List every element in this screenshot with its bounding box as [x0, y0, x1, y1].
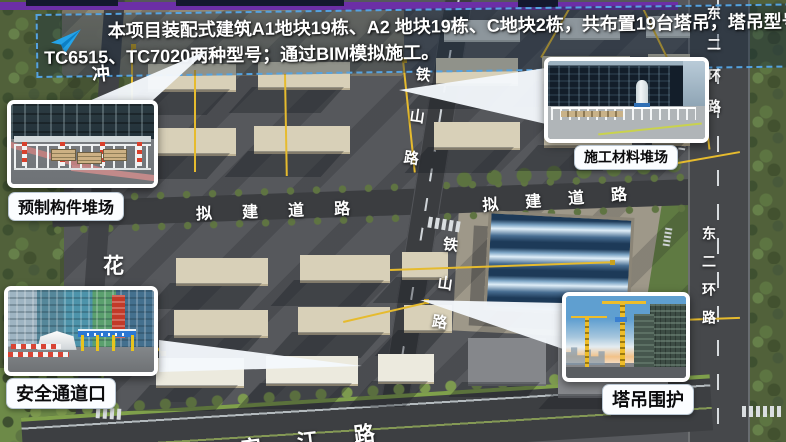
building-block [266, 356, 358, 386]
tower-facade [548, 66, 670, 107]
callout-label-safety-entrance: 安全通道口 [6, 378, 116, 409]
crane-marker [610, 260, 615, 265]
safety-entrance-photo [8, 290, 154, 372]
precast-stack [103, 149, 128, 161]
silo [636, 80, 649, 105]
canopy-leg [131, 335, 134, 351]
callout-image-safety-entrance [4, 286, 158, 376]
building-block [300, 255, 390, 283]
callout-image-crane-enclosure [562, 292, 690, 382]
slide-accent-segment [176, 0, 344, 6]
road-label-hua: 花 [103, 250, 124, 280]
callout-label-crane-enclosure: 塔吊围护 [602, 384, 694, 415]
sky [683, 61, 705, 106]
striped-post [137, 142, 142, 166]
banner-text-line1: 本项目装配式建筑A1地块19栋、A2 地块19栋、C地块2栋，共布置19台塔吊，… [108, 8, 786, 43]
precast-yard-photo [11, 104, 154, 184]
road-label-ring-south: 东二环路 [699, 226, 719, 338]
ground [566, 367, 686, 378]
slide-accent-segment [26, 0, 118, 6]
canopy-leg [96, 335, 99, 351]
road-label-chong: 冲 [91, 59, 112, 87]
building-block [174, 310, 268, 338]
material-stacks [561, 111, 624, 117]
canopy-leg [81, 335, 84, 351]
canopy-leg [112, 335, 115, 351]
glass-building [634, 314, 653, 368]
building-block [146, 128, 236, 156]
tower-crane-jib [602, 301, 646, 304]
precast-stack [77, 152, 102, 164]
tower-crane-jib [571, 316, 607, 318]
crane-enclosure-photo [566, 296, 686, 378]
safety-canopy-sign [78, 329, 136, 338]
glass-building [650, 304, 686, 368]
bim-site-plan: 拟建道路 拟建道路 铁山路 铁山路 东二环路 东二环路 安江路 冲 花 本项目装… [0, 0, 786, 442]
callout-label-material-yard: 施工材料堆场 [574, 145, 678, 170]
building-block [254, 126, 350, 154]
crosswalk [742, 406, 781, 417]
callout-image-precast-yard [7, 100, 158, 188]
precast-stack [51, 149, 76, 161]
crane-sign [615, 317, 627, 322]
callout-image-material-yard [544, 57, 709, 143]
crane-marker [424, 299, 429, 304]
building-block [468, 338, 546, 386]
building-block [378, 354, 434, 384]
tower-crane-mast [620, 301, 625, 367]
girder [14, 136, 151, 142]
building-block [434, 122, 520, 150]
crane-marker [161, 351, 166, 356]
tower-crane-line [194, 70, 196, 172]
striped-post [22, 142, 27, 166]
striped-barrier [11, 344, 61, 349]
tower-crane-mast [585, 316, 589, 367]
crosswalk [96, 407, 122, 420]
lane-line [598, 123, 701, 136]
building-block [176, 258, 268, 286]
building-block [156, 358, 244, 388]
building-facade [11, 104, 154, 139]
callout-label-precast-yard: 预制构件堆场 [8, 192, 124, 221]
material-yard-photo [548, 61, 705, 139]
striped-barrier [8, 352, 69, 357]
